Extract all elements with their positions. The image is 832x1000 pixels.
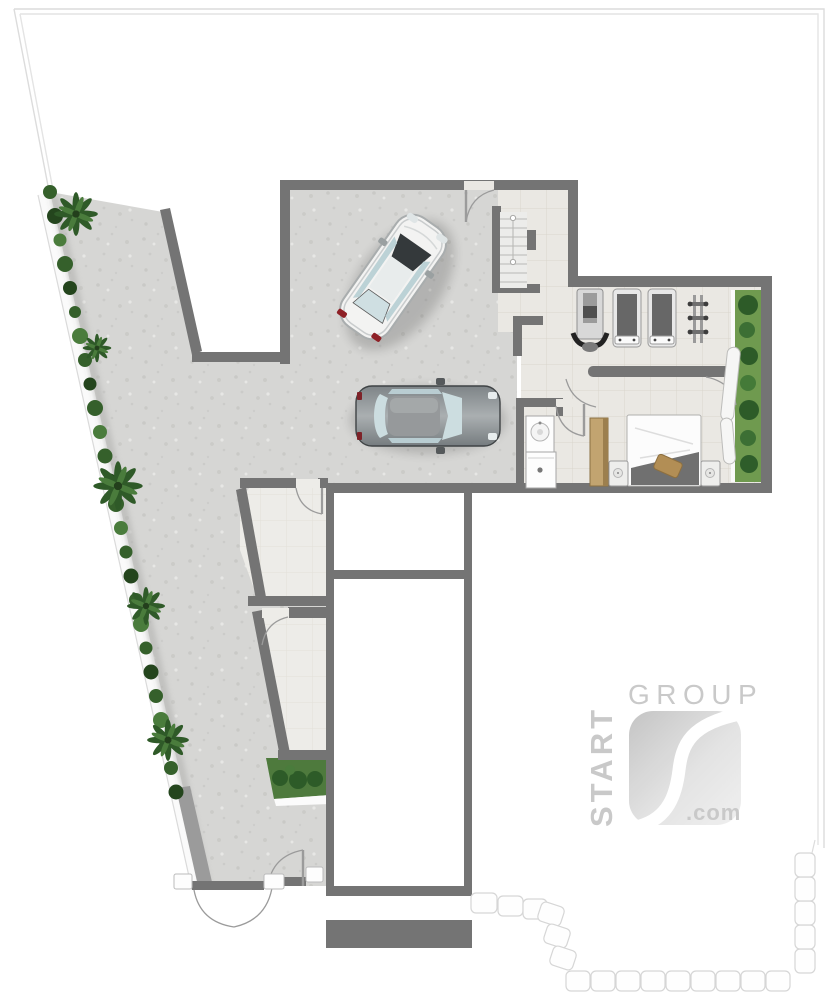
treadmill-2 xyxy=(648,289,676,347)
palm-tree-5 xyxy=(147,719,189,761)
white-room-2 xyxy=(334,581,464,886)
washing-machine xyxy=(526,452,556,488)
gate-post-left xyxy=(174,874,192,889)
stair-rail-post-bottom xyxy=(510,259,515,264)
wall-rooms-west xyxy=(326,483,334,895)
palm-tree-4 xyxy=(127,587,165,625)
weight-machine xyxy=(573,289,607,352)
wall-notch-south xyxy=(192,352,290,362)
headlight-bottom xyxy=(488,433,497,440)
block-wall xyxy=(471,840,815,991)
palm-tree-1 xyxy=(54,192,98,236)
wall-rooms-south-band xyxy=(326,920,472,948)
white-porch-strip xyxy=(334,896,464,922)
wall-storage2-north xyxy=(288,607,334,618)
wall-stair-west xyxy=(492,206,501,292)
wall-storage1-north-a xyxy=(240,478,296,488)
wall-top-right-corner xyxy=(568,180,578,286)
wall-storage1-south xyxy=(248,596,334,606)
gate-post-right xyxy=(306,867,323,882)
opening-hall-door xyxy=(464,181,494,190)
laundry-nook xyxy=(526,416,556,488)
mirror-top xyxy=(436,378,445,385)
white-room-1 xyxy=(334,493,464,572)
taillight-top xyxy=(357,392,362,400)
palm-tree-2 xyxy=(83,334,112,363)
wall-rooms-divider xyxy=(334,570,464,579)
wall-gym-east xyxy=(761,276,772,493)
bed xyxy=(627,415,701,486)
headlight-top xyxy=(488,392,497,399)
white-rooms xyxy=(334,493,464,922)
floor-plan-rendering: GROUP START .com xyxy=(0,0,832,1000)
nightstand-left xyxy=(609,461,628,486)
wall-rooms-east xyxy=(464,483,472,895)
wall-laundry-west xyxy=(516,398,524,490)
palm-tree-3 xyxy=(93,461,142,510)
wall-vestibule-h xyxy=(513,316,543,325)
staircase xyxy=(500,212,527,288)
car-dark xyxy=(356,378,500,454)
watermark-logo: GROUP START .com xyxy=(584,679,763,827)
wardrobe-shade xyxy=(603,418,608,486)
taillight-bottom xyxy=(357,432,362,440)
opening-storage2-door xyxy=(262,608,289,618)
gate-double xyxy=(194,888,272,927)
wall-gym-north xyxy=(568,276,772,287)
side-glass-top xyxy=(388,389,442,394)
gym-counter xyxy=(588,366,738,377)
side-glass-bottom xyxy=(388,438,442,443)
stair-rail-post-top xyxy=(510,215,515,220)
mirror-bottom xyxy=(436,447,445,454)
wall-storage2-south xyxy=(278,750,334,760)
wall-rooms-south xyxy=(326,886,472,896)
brand-com-text: .com xyxy=(686,800,741,825)
wall-top xyxy=(280,180,578,190)
opening-storage1-door xyxy=(296,479,320,488)
wall-gate-a xyxy=(192,881,264,890)
brand-start-text: START xyxy=(584,706,619,827)
nightstand-right xyxy=(701,461,720,486)
gate-post-middle xyxy=(264,874,284,889)
washbasin xyxy=(526,416,554,452)
wall-laundry-north xyxy=(516,398,558,407)
brand-group-text: GROUP xyxy=(628,679,763,710)
wall-garage-west xyxy=(280,180,290,364)
treadmill-1 xyxy=(613,289,641,347)
